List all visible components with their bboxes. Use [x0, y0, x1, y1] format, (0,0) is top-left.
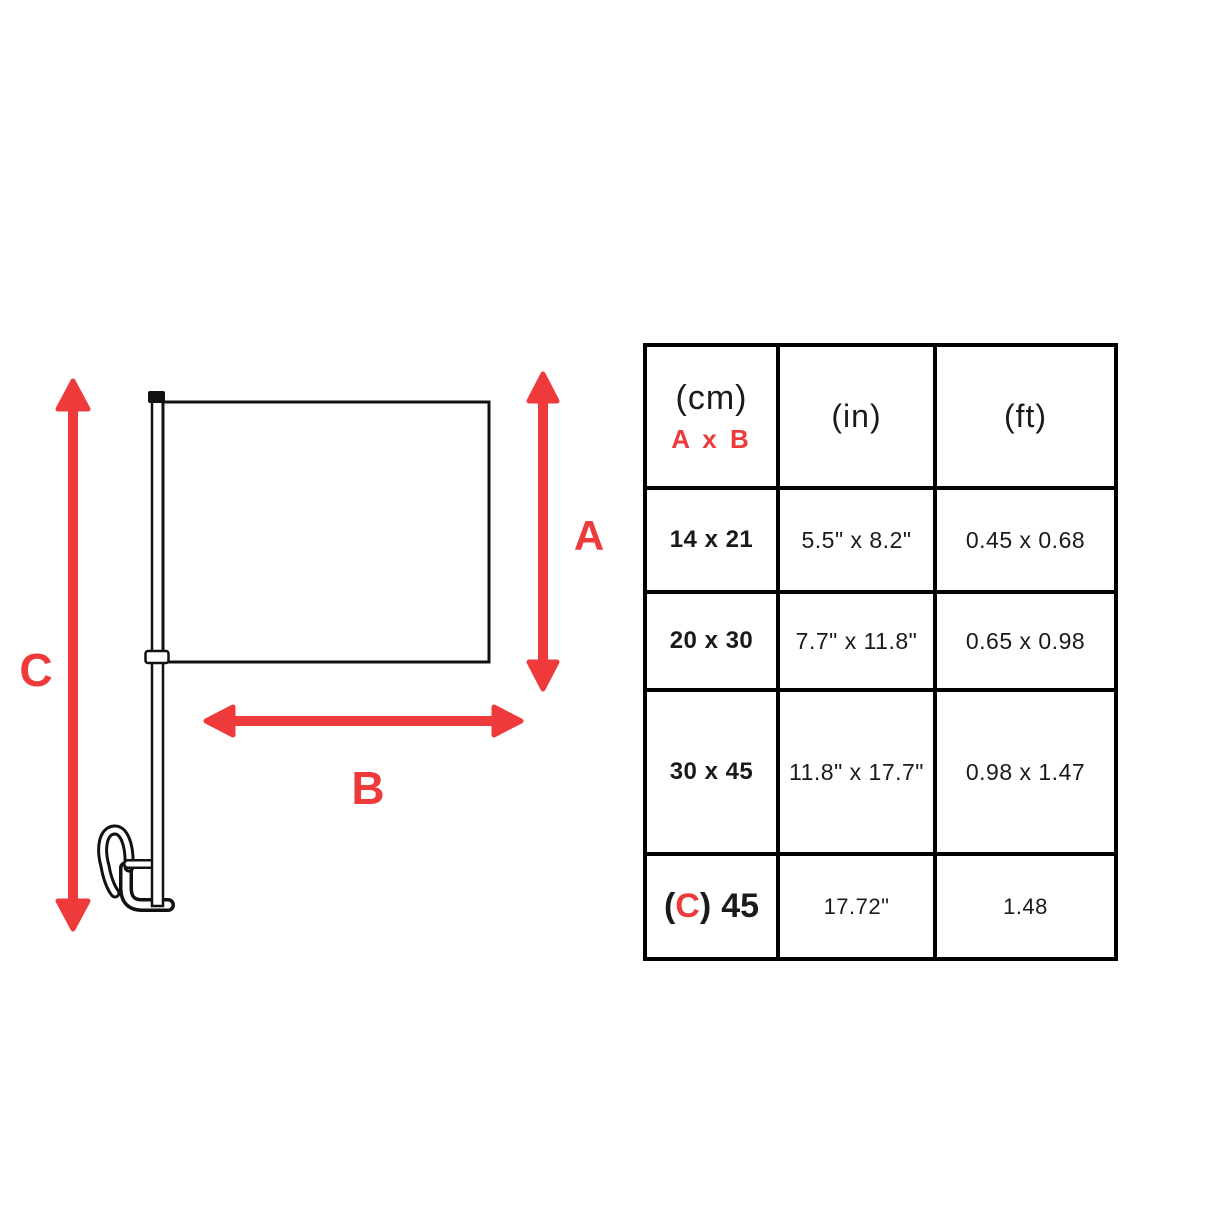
paren-close: ): [700, 887, 711, 926]
table-row-cell: 17.72": [780, 856, 933, 957]
header-cell-cm: (cm) A x B: [647, 347, 776, 486]
table-row-cell: 0.65 x 0.98: [937, 594, 1114, 688]
table-row-cell-pole-length: (C)45: [647, 856, 776, 957]
header-cell-ft: (ft): [937, 347, 1114, 486]
size-in: 5.5" x 8.2": [801, 527, 911, 554]
size-in: 11.8" x 17.7": [789, 759, 924, 786]
c-dimension-letter: C: [675, 887, 700, 926]
header-unit-cm: (cm): [676, 379, 748, 418]
size-ft: 0.45 x 0.68: [966, 527, 1085, 554]
header-unit-ft: (ft): [1004, 398, 1047, 435]
size-cm: 20 x 30: [670, 627, 754, 655]
label-a: A: [574, 512, 604, 559]
pole-connector-icon: [146, 651, 169, 663]
table-row-cell: 5.5" x 8.2": [780, 490, 933, 590]
table-row-cell: 11.8" x 17.7": [780, 692, 933, 852]
label-b: B: [351, 762, 384, 814]
table-row-cell: 7.7" x 11.8": [780, 594, 933, 688]
size-in: 7.7" x 11.8": [796, 628, 918, 655]
table-row-cell: 14 x 21: [647, 490, 776, 590]
table-row-cell: 0.98 x 1.47: [937, 692, 1114, 852]
table-row-cell: 1.48: [937, 856, 1114, 957]
dimension-arrow-b-icon: [206, 707, 521, 735]
dimension-arrow-c-icon: [58, 381, 88, 929]
dimension-arrow-a-icon: [529, 374, 557, 689]
paren-open: (: [664, 887, 675, 926]
table-row-cell: 0.45 x 0.68: [937, 490, 1114, 590]
label-c: C: [19, 644, 52, 696]
header-unit-in: (in): [831, 398, 881, 435]
pole-length-cm: 45: [721, 887, 759, 926]
size-ft: 0.98 x 1.47: [966, 759, 1085, 786]
page: C A B (cm) A x B (in) (ft) 14 x 21 5.5" …: [0, 0, 1214, 1214]
size-ft: 0.65 x 0.98: [966, 628, 1085, 655]
size-cm: 14 x 21: [670, 526, 754, 554]
pole-length-in: 17.72": [824, 894, 890, 920]
flag-panel: [163, 402, 489, 662]
header-a-x-b: A x B: [671, 424, 752, 455]
size-cm: 30 x 45: [670, 758, 754, 786]
size-table: (cm) A x B (in) (ft) 14 x 21 5.5" x 8.2"…: [643, 343, 1118, 961]
table-row-cell: 20 x 30: [647, 594, 776, 688]
table-row-cell: 30 x 45: [647, 692, 776, 852]
pole-length-ft: 1.48: [1003, 894, 1048, 920]
header-cell-in: (in): [780, 347, 933, 486]
